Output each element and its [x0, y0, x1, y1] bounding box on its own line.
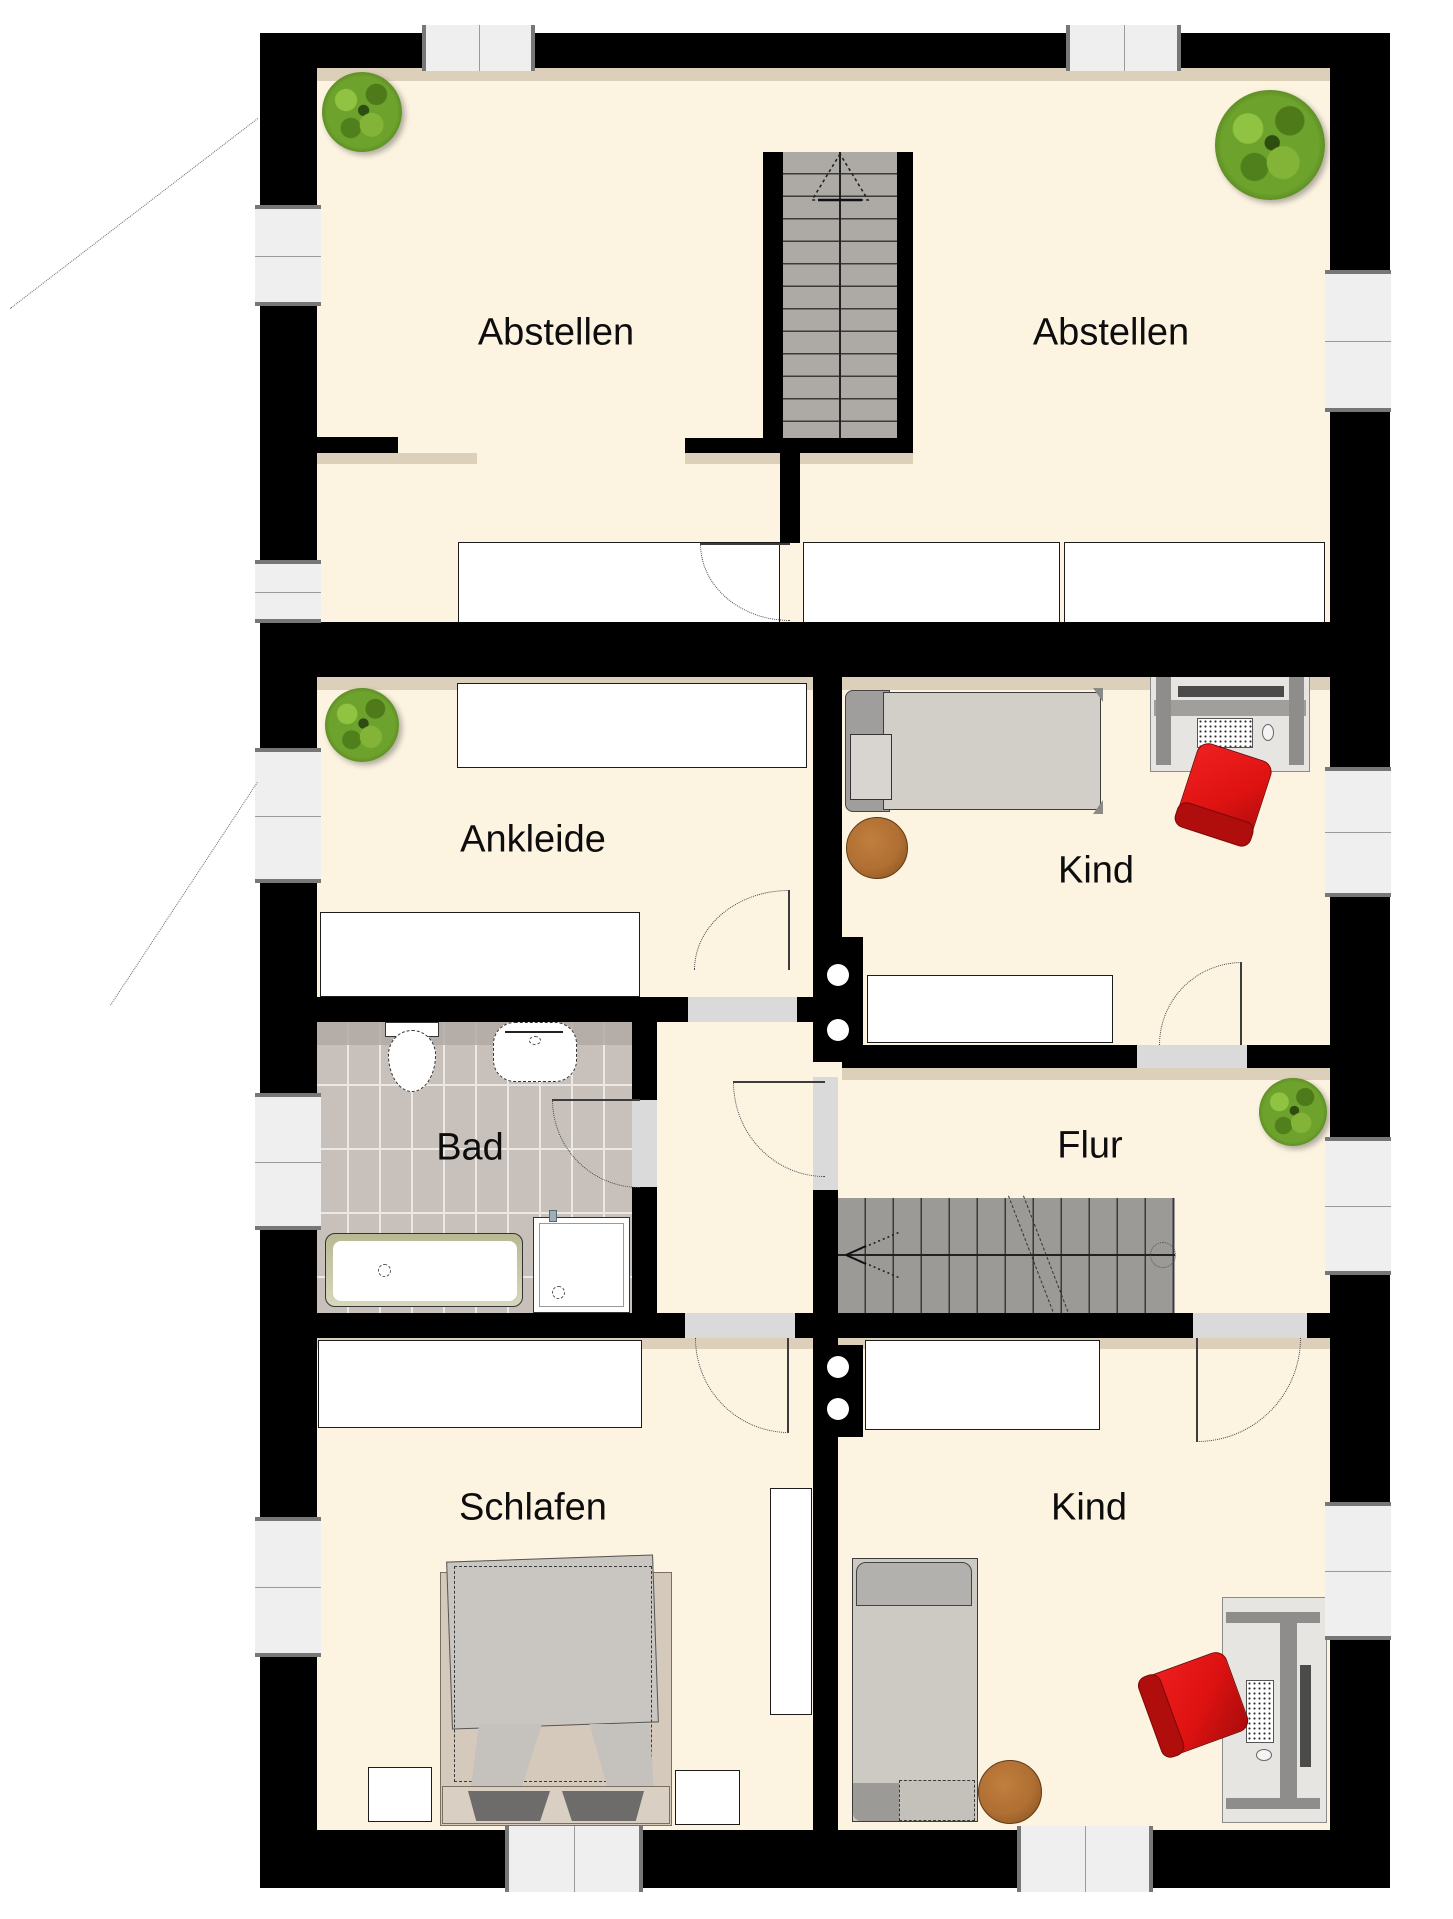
- stairs-main-arrow-icon: [840, 1226, 936, 1286]
- bed-pillow: [850, 734, 892, 800]
- chimney-block-upper: [813, 937, 863, 1062]
- plant-abstellen-right-icon: [1215, 90, 1325, 200]
- wall-under-stairs: [685, 438, 913, 453]
- room-label-abstellen-left: Abstellen: [478, 312, 634, 355]
- desk-leg-left: [1156, 677, 1171, 765]
- monitor: [1178, 686, 1284, 697]
- stairs-attic-up-arrow-icon: [788, 148, 892, 212]
- shelf-kind-top: [867, 975, 1113, 1043]
- bathtub: [325, 1233, 523, 1307]
- bed-kind-bottom: [852, 1558, 978, 1822]
- wall-stub-vertical: [780, 453, 800, 543]
- window-left-1: [255, 205, 321, 306]
- sink-drain: [529, 1036, 541, 1045]
- roof-projection-line-upper: [10, 118, 258, 309]
- window-right-3: [1325, 1137, 1391, 1275]
- nightstand-right: [675, 1770, 740, 1825]
- chimney-vent-icon: [827, 964, 849, 986]
- wall-kind-top-bottom-right: [1247, 1045, 1330, 1068]
- shadow-kind-top-wall: [842, 1068, 1330, 1080]
- shower-drain: [552, 1286, 565, 1299]
- stool-kind-bottom: [978, 1760, 1042, 1824]
- dresser-ankleide: [320, 912, 640, 997]
- wall-outer-bottom: [260, 1830, 1390, 1888]
- sink: [493, 1022, 577, 1082]
- desk-post: [1280, 1612, 1297, 1809]
- roof-projection-line-lower: [110, 782, 258, 1005]
- room-label-schlafen: Schlafen: [459, 1487, 607, 1530]
- wall-middle-lower: [317, 1313, 1330, 1338]
- keyboard: [1246, 1680, 1274, 1743]
- chimney-vent-icon: [827, 1356, 849, 1378]
- monitor: [1300, 1665, 1311, 1767]
- window-top-1: [422, 25, 535, 71]
- bed-foot-blanket-dark: [853, 1783, 899, 1821]
- bed-foot-blanket-light: [899, 1780, 975, 1821]
- window-bottom-2: [1017, 1826, 1153, 1892]
- door-opening-kind-bottom: [1193, 1313, 1307, 1338]
- desk-bar-top: [1226, 1612, 1320, 1623]
- door-opening-schlafen: [685, 1313, 795, 1338]
- window-right-1: [1325, 270, 1391, 412]
- bed-pillow-right: [562, 1791, 644, 1821]
- bathroom-tile-top-strip: [317, 1022, 632, 1045]
- nightstand-left: [368, 1767, 432, 1822]
- door-opening-kind-top: [1137, 1045, 1247, 1068]
- stairs-newel-mark: [1150, 1242, 1176, 1268]
- bathtub-inner: [333, 1241, 517, 1301]
- room-label-kind-top: Kind: [1058, 850, 1134, 893]
- door-opening-ankleide: [688, 997, 797, 1022]
- desk-crossbar: [1154, 700, 1306, 716]
- room-label-bad: Bad: [436, 1127, 504, 1170]
- window-top-2: [1066, 25, 1181, 71]
- window-left-3: [255, 748, 321, 883]
- wardrobe-kind-bottom: [865, 1340, 1100, 1430]
- sink-faucet: [505, 1031, 563, 1033]
- window-left-4: [255, 1093, 321, 1230]
- chimney-vent-icon: [827, 1019, 849, 1041]
- wardrobe-ankleide: [457, 683, 807, 768]
- bed-mattress: [883, 692, 1101, 810]
- wall-ankleide-bottom-right: [797, 997, 813, 1022]
- bed-schlafen: [440, 1558, 672, 1828]
- toilet: [383, 1022, 441, 1094]
- cabinet-schlafen: [770, 1488, 812, 1715]
- window-left-5: [255, 1517, 321, 1657]
- room-label-flur: Flur: [1057, 1125, 1122, 1168]
- wardrobe-abstellen-right-1: [803, 542, 1060, 623]
- mouse: [1262, 724, 1274, 741]
- wall-separator: [317, 622, 1330, 677]
- shower-head: [549, 1210, 557, 1222]
- bathtub-drain: [378, 1264, 391, 1277]
- wall-stub-left: [317, 437, 398, 453]
- mouse: [1256, 1749, 1272, 1761]
- bed-pillow-left: [468, 1791, 550, 1821]
- wall-stairwell-left: [763, 152, 783, 438]
- room-label-abstellen-right: Abstellen: [1033, 312, 1189, 355]
- desk-bar-bottom: [1226, 1798, 1320, 1809]
- wall-bad-right-upper: [632, 1022, 657, 1100]
- plant-abstellen-left-icon: [322, 72, 402, 152]
- plant-ankleide-icon: [325, 688, 399, 762]
- wall-kind-top-bottom-left: [842, 1045, 1137, 1068]
- shadow-stub-wall: [317, 453, 477, 464]
- chimney-vent-icon: [827, 1398, 849, 1420]
- floor-plan: Abstellen Abstellen Ankleide Kind Bad Fl…: [0, 0, 1453, 1919]
- toilet-bowl: [388, 1030, 436, 1092]
- wardrobe-schlafen: [318, 1340, 642, 1428]
- shower: [533, 1217, 630, 1313]
- wall-corridor-right: [813, 1190, 838, 1313]
- bed-kind-top: [845, 688, 1103, 814]
- room-label-kind-bottom: Kind: [1051, 1487, 1127, 1530]
- wall-bad-right-lower: [632, 1187, 657, 1313]
- desk-leg-right: [1289, 677, 1304, 765]
- window-right-4: [1325, 1502, 1391, 1640]
- window-right-2: [1325, 767, 1391, 897]
- wall-ankleide-bottom: [317, 997, 688, 1022]
- bed-pillow: [856, 1562, 972, 1606]
- wardrobe-abstellen-right-2: [1064, 542, 1325, 623]
- wall-ankleide-kind: [813, 677, 842, 937]
- stool-kind-top: [846, 817, 908, 879]
- plant-flur-icon: [1259, 1078, 1327, 1146]
- room-label-ankleide: Ankleide: [460, 819, 606, 862]
- window-bottom-1: [505, 1826, 643, 1892]
- window-left-2: [255, 560, 321, 623]
- wall-stairwell-right: [897, 152, 913, 438]
